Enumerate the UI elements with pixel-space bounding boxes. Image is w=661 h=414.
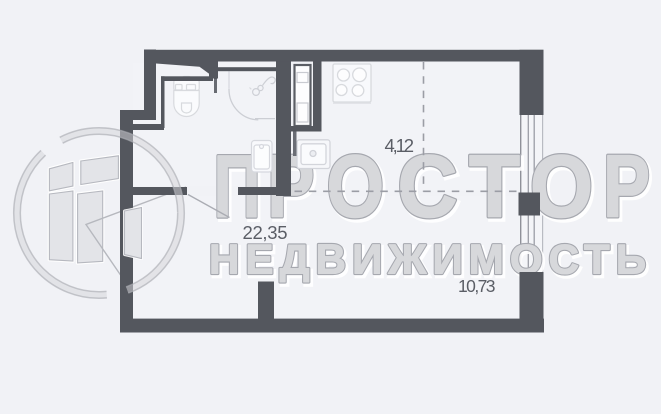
svg-text:10,73: 10,73 <box>458 276 496 296</box>
svg-text:О: О <box>530 137 593 236</box>
svg-text:О: О <box>327 137 385 236</box>
svg-text:22,35: 22,35 <box>243 222 288 243</box>
svg-text:Т: Т <box>469 137 520 236</box>
svg-text:Р: Р <box>603 137 650 236</box>
svg-text:4,12: 4,12 <box>385 135 415 156</box>
